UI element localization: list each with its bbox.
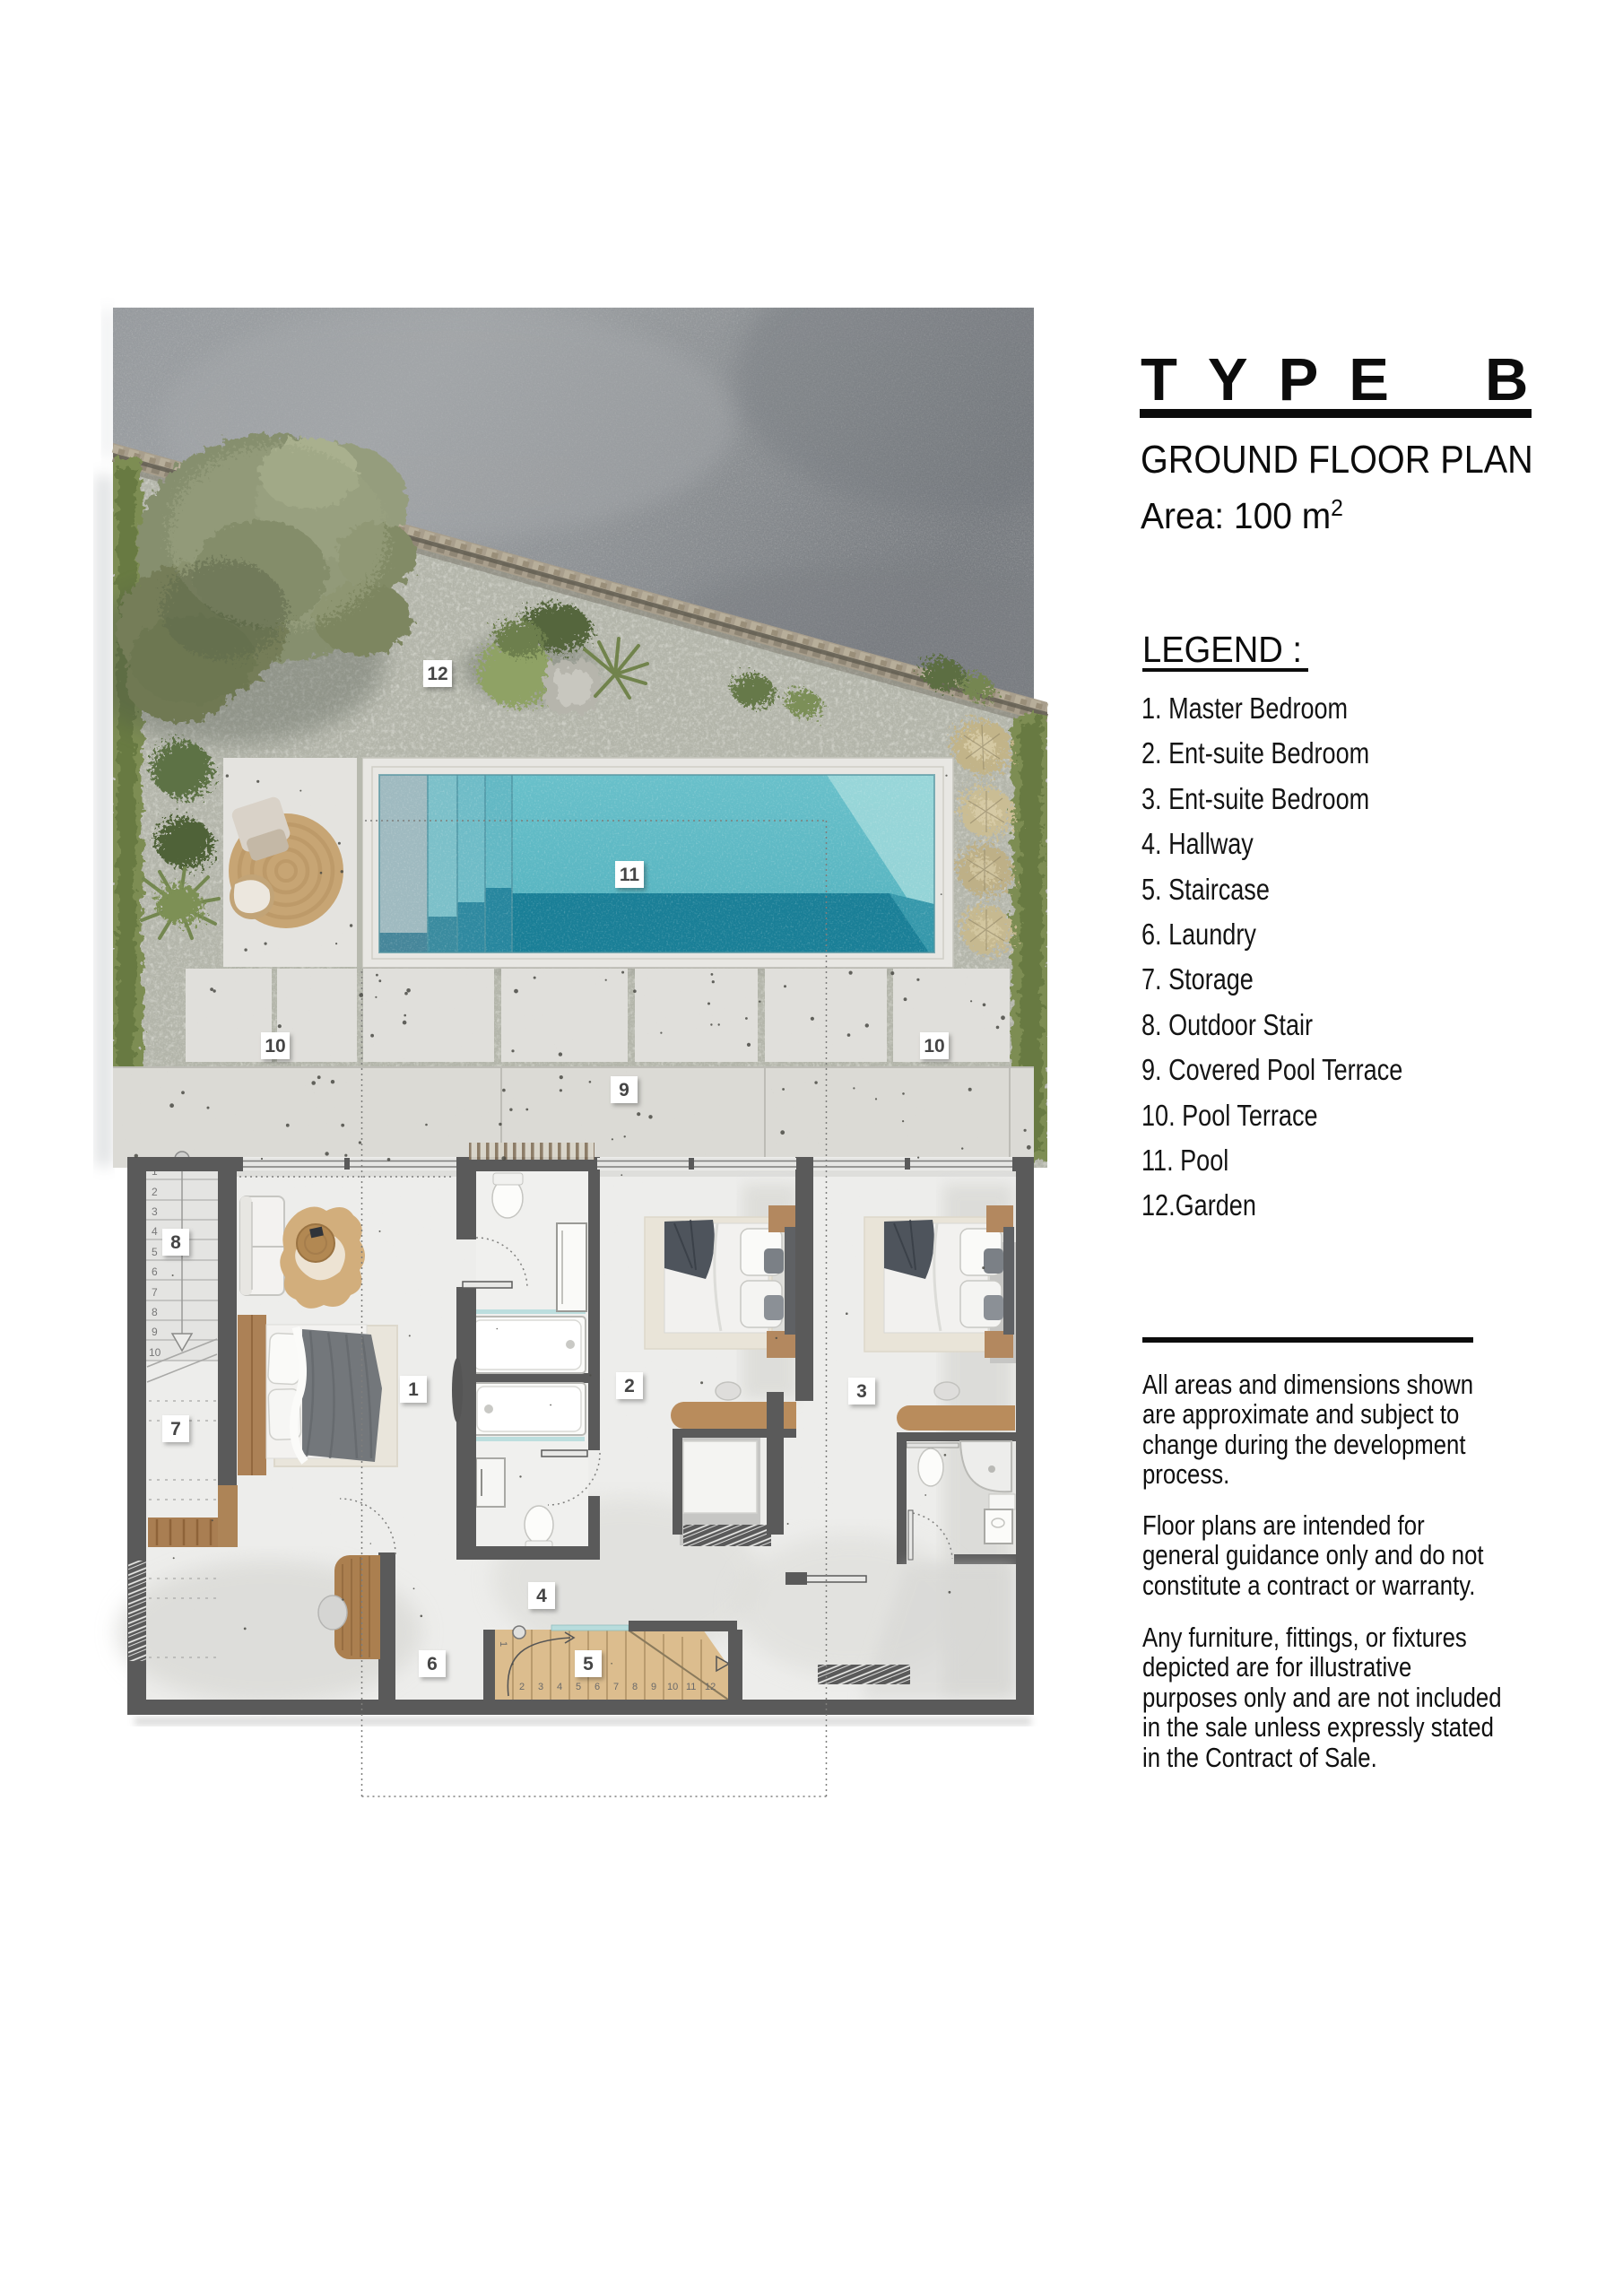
svg-text:10: 10 (667, 1682, 678, 1692)
svg-text:10: 10 (924, 1036, 944, 1057)
svg-text:9: 9 (619, 1080, 629, 1100)
svg-text:8: 8 (152, 1306, 158, 1318)
svg-text:7: 7 (613, 1682, 619, 1692)
svg-text:12: 12 (705, 1682, 716, 1692)
svg-text:5: 5 (576, 1682, 581, 1692)
svg-text:6: 6 (595, 1682, 600, 1692)
svg-text:7: 7 (170, 1419, 181, 1439)
svg-text:10: 10 (265, 1036, 285, 1057)
svg-text:1: 1 (408, 1379, 419, 1400)
svg-text:5: 5 (583, 1654, 594, 1674)
svg-text:3: 3 (538, 1682, 543, 1692)
svg-text:7: 7 (152, 1286, 158, 1299)
svg-text:10: 10 (149, 1346, 161, 1359)
svg-text:2: 2 (624, 1376, 635, 1396)
svg-text:4: 4 (557, 1682, 562, 1692)
svg-text:9: 9 (651, 1682, 656, 1692)
svg-text:8: 8 (632, 1682, 638, 1692)
svg-text:6: 6 (427, 1654, 438, 1674)
svg-text:12: 12 (427, 664, 447, 684)
svg-text:2: 2 (519, 1682, 525, 1692)
svg-text:4: 4 (536, 1586, 547, 1606)
svg-text:3: 3 (856, 1381, 867, 1402)
svg-text:1: 1 (498, 1641, 508, 1647)
svg-text:8: 8 (170, 1232, 181, 1253)
svg-text:2: 2 (152, 1186, 158, 1198)
svg-text:4: 4 (152, 1225, 158, 1238)
svg-text:11: 11 (686, 1682, 696, 1692)
svg-text:9: 9 (152, 1326, 158, 1338)
svg-text:3: 3 (152, 1205, 158, 1218)
svg-text:11: 11 (620, 865, 640, 885)
svg-text:6: 6 (152, 1265, 158, 1278)
svg-text:5: 5 (152, 1246, 158, 1258)
